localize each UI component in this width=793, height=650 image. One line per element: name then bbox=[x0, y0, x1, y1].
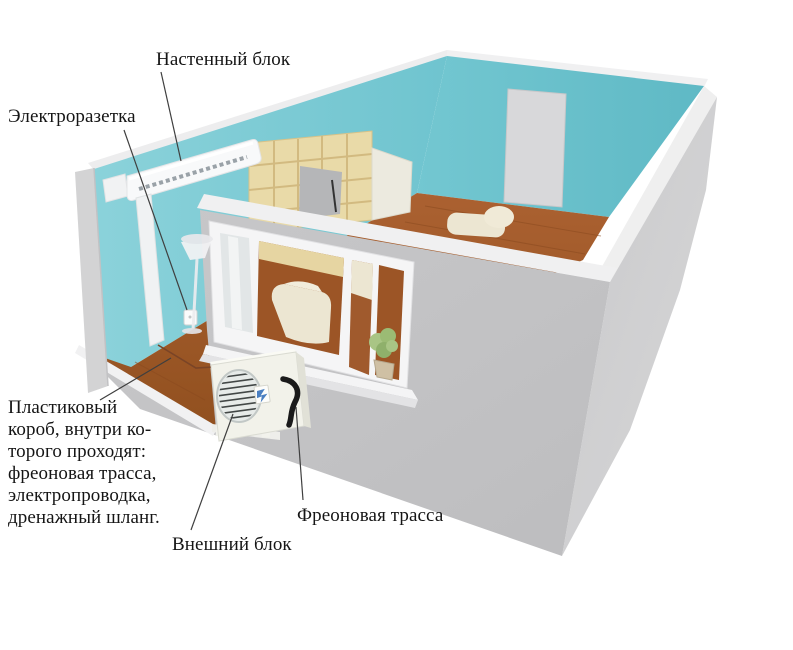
diagram-canvas: Настенный блок Электроразетка Пластиковы… bbox=[0, 0, 793, 650]
label-wall-unit: Настенный блок bbox=[156, 49, 290, 71]
door bbox=[504, 89, 566, 207]
fan-ring bbox=[217, 370, 261, 422]
label-plastic-duct-line1: Пластиковый bbox=[8, 397, 160, 419]
label-outlet: Электроразетка bbox=[8, 106, 136, 128]
label-plastic-duct-line5: электропроводка, bbox=[8, 485, 160, 507]
label-plastic-duct-line2: короб, внутри ко- bbox=[8, 419, 160, 441]
brand-sticker bbox=[254, 385, 270, 404]
window-pane-right bbox=[349, 260, 373, 375]
label-plastic-duct-line3: торого проходят: bbox=[8, 441, 160, 463]
label-plastic-duct-line6: дренажный шланг. bbox=[8, 507, 160, 529]
label-freon-line: Фреоновая трасса bbox=[297, 505, 443, 527]
label-plastic-duct-line4: фреоновая трасса, bbox=[8, 463, 160, 485]
window-pane-left bbox=[220, 233, 253, 333]
room-illustration bbox=[0, 0, 793, 650]
outdoor-unit bbox=[210, 349, 311, 441]
label-plastic-duct: Пластиковый короб, внутри ко- торого про… bbox=[8, 397, 160, 529]
window-pane-center bbox=[257, 241, 344, 355]
label-outdoor-unit: Внешний блок bbox=[172, 534, 292, 556]
